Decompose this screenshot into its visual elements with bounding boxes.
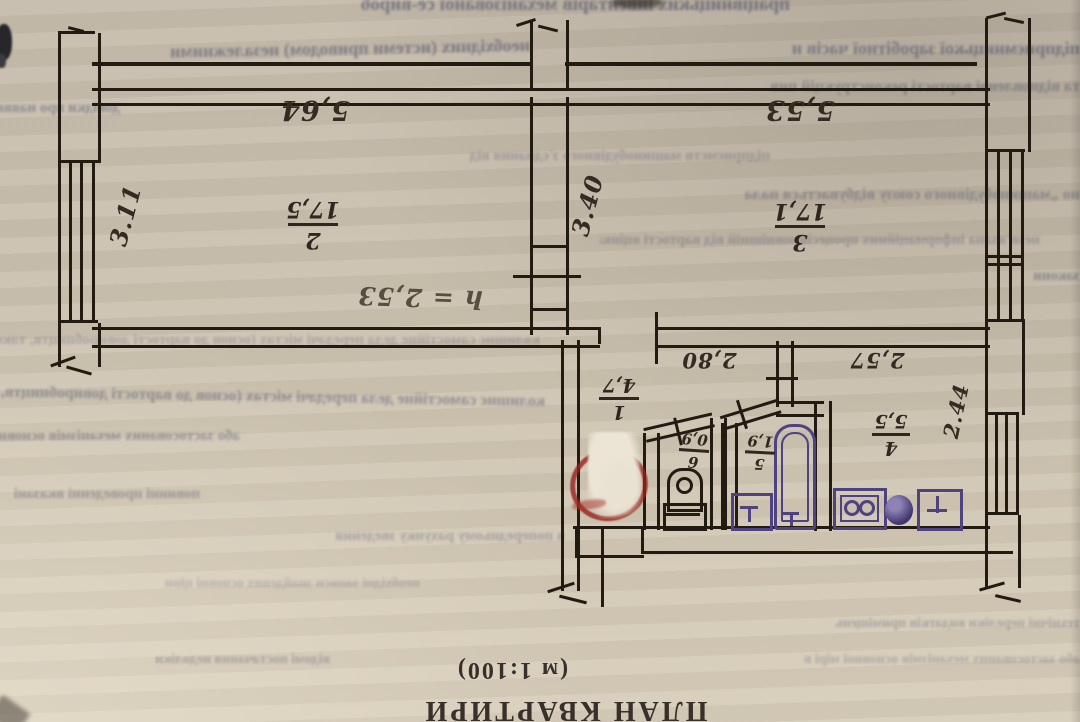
window-kitchen-glazing [985, 415, 988, 515]
room-label-room2: 2 17,5 [283, 196, 343, 253]
room-number: 5 [739, 454, 780, 474]
dimension-label-room2-width: 5,64 [265, 94, 365, 125]
wall-middle-right [657, 327, 990, 348]
door-tick-kitchen [766, 377, 798, 380]
sink-tap-icon [740, 506, 758, 509]
wall-top-outer-left [92, 62, 533, 66]
fraction-bar [872, 433, 910, 436]
dimension-label-hall-width: 2,80 [669, 348, 749, 373]
entry-recess [641, 526, 644, 554]
room-label-bath: 5 1,9 [739, 431, 781, 474]
bleed-text: колишнє самостійне дела передачі містах … [0, 383, 545, 411]
stove-burner-icon [859, 500, 875, 516]
scan-smudge [612, 0, 662, 8]
kitchen-sink-tap-icon [927, 509, 947, 512]
wall-top-outer-right [565, 62, 977, 66]
whiteout-blob [600, 455, 642, 515]
wall-kitchen-hall [776, 341, 794, 407]
room-label-room3: 3 17,1 [770, 198, 830, 255]
room-number: 2 [283, 227, 343, 253]
round-basin-icon [885, 495, 913, 525]
fraction-bar [599, 397, 639, 400]
scan-edge-shadow [1070, 0, 1080, 722]
window-room2-glazing [58, 163, 61, 323]
window-room2-glazing [80, 163, 83, 323]
partition-door-leaf [513, 275, 581, 278]
door-leaf-hall-room3 [655, 312, 658, 364]
room-area: 17,1 [770, 198, 830, 224]
dimension-label-room3-width: 5,53 [750, 94, 850, 125]
wall-bath-right [814, 401, 832, 531]
wall-bath-diagonal [720, 399, 782, 431]
window-kitchen-glazing [1005, 415, 1008, 515]
wall-left-upper [58, 33, 101, 163]
wall-partition [530, 97, 569, 335]
toilet-icon [676, 477, 693, 494]
door-jamb [598, 327, 601, 344]
window-room3-glazing [985, 152, 988, 322]
room-area: 4,7 [594, 374, 644, 396]
bleed-text: в попередньому рахунку зведення [245, 528, 565, 545]
window-kitchen-glazing [995, 415, 998, 515]
window-kitchen-sill [985, 412, 1019, 415]
wall-middle-left [92, 327, 600, 348]
bathtub-icon [781, 432, 809, 522]
bleed-text: працівницьких інвентарів механізованої с… [150, 0, 790, 16]
toilet-icon [664, 513, 700, 516]
plan-title: ПЛАН КВАРТИРИ [420, 694, 710, 722]
entry-door-leaf [601, 526, 604, 607]
sink-icon [731, 493, 773, 531]
bleed-text: повинні проведенні вказані [0, 486, 200, 503]
room-number: 4 [866, 437, 916, 459]
room-number: 6 [673, 452, 714, 473]
room-label-kitchen: 4 5,5 [866, 410, 916, 459]
wall-break-mark [995, 594, 1021, 603]
fraction-bar [288, 223, 338, 226]
room-number: 3 [770, 229, 830, 255]
wall-right-lower [985, 515, 1021, 588]
partition-tick [530, 245, 566, 248]
room-area: 0,9 [674, 429, 715, 450]
bleed-text: необхідні записи знайдених основні ціни [0, 576, 420, 592]
bleed-text: або застосованих механізмів основної мір… [700, 652, 1080, 668]
bathtub-tap-icon [783, 512, 799, 515]
room-area: 1,9 [740, 431, 781, 451]
room-label-hall: 1 4,7 [594, 374, 644, 423]
dimension-label-room2-depth: 3.11 [103, 184, 147, 249]
window-room3-midbar [985, 263, 1023, 266]
window-room3-midbar [985, 255, 1023, 258]
bleed-text: відомі постачання недоліки [0, 652, 330, 668]
wall-bottom-outer [641, 551, 1013, 554]
fraction-bar [775, 225, 825, 228]
scan-corner-shadow [0, 695, 30, 722]
bleed-text: або застосованих механізмів основної мір… [0, 428, 240, 445]
room-area: 17,5 [283, 196, 343, 222]
wall-break-mark [559, 595, 587, 605]
room-label-wc: 6 0,9 [673, 429, 716, 473]
entry-recess [575, 526, 578, 558]
partition-tick [530, 308, 566, 311]
bleed-text: технічні переліки видатків приміщень [630, 616, 1080, 632]
wall-right-middle [985, 322, 1025, 415]
scan-blotch [0, 54, 6, 68]
dimension-label-kitchen-depth: 2.44 [938, 381, 974, 441]
window-room3-glazing [1021, 152, 1024, 322]
scanned-floor-plan-page: працівницьких інвентарів механізованої с… [0, 0, 1080, 722]
window-room3-glazing [1009, 152, 1012, 322]
window-room2-glazing [69, 163, 72, 323]
window-room3-glazing [997, 152, 1000, 322]
entry-recess [575, 555, 644, 558]
stove-burner-icon [844, 500, 860, 516]
bleed-text: підприємств машинобудівного з'єднання ві… [250, 148, 770, 165]
window-room3-sill [985, 149, 1025, 152]
wall-right-upper [985, 18, 1031, 152]
plan-scale: (м 1:100) [427, 656, 597, 683]
room-area: 5,5 [866, 410, 916, 432]
height-note: h = 2,53 [340, 280, 501, 315]
dimension-label-kitchen-width: 2,57 [837, 348, 917, 373]
dimension-label-room3-depth: 3.40 [565, 174, 609, 239]
window-room2-glazing [92, 163, 95, 323]
room-number: 1 [594, 401, 644, 423]
window-kitchen-glazing [1016, 415, 1019, 515]
